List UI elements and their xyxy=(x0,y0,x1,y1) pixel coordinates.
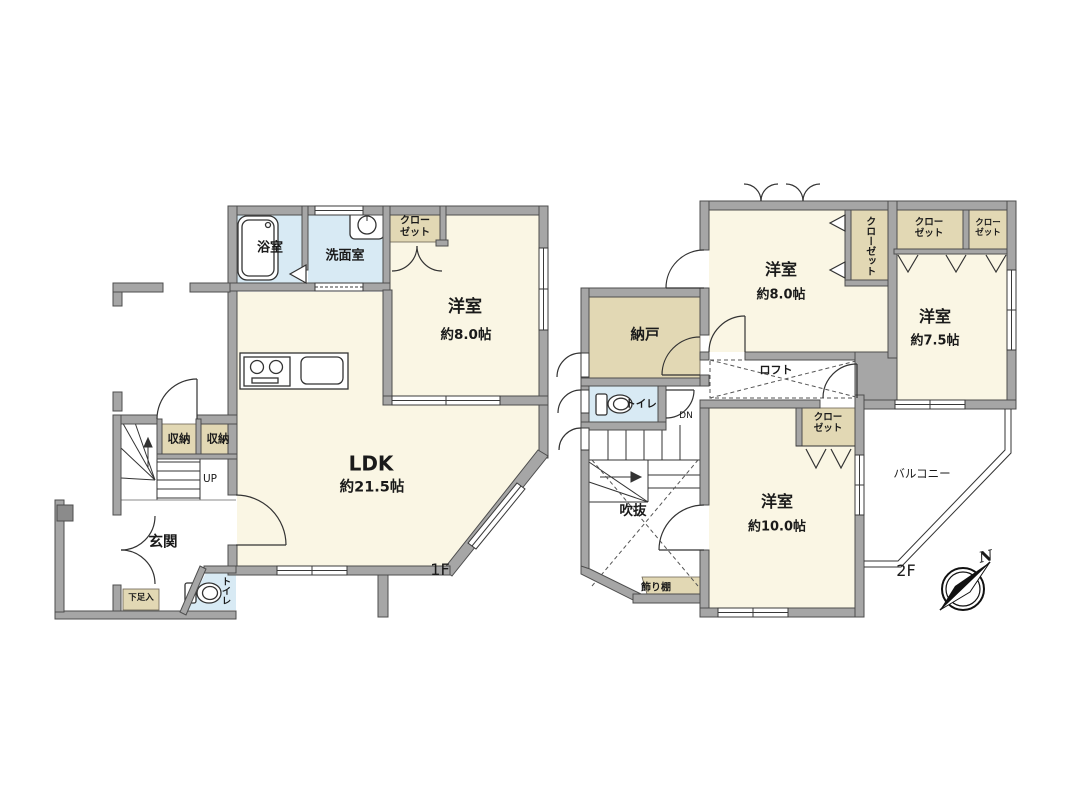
room-label-toilet-1f: トイレ xyxy=(219,577,230,606)
fence-mark xyxy=(113,283,163,292)
fence-mark xyxy=(113,392,122,411)
hall-door-arc xyxy=(157,379,197,419)
atrium-dashed-area xyxy=(592,460,698,586)
room-label-storeroom: 納戸 xyxy=(631,328,660,345)
room-size-western-8: 約8.0帖 xyxy=(756,289,805,304)
room-label-closet-b: クローゼット xyxy=(973,219,1003,239)
room-label-ldk: LDK xyxy=(349,453,394,476)
fence-mark xyxy=(113,292,122,306)
room-label-balcony: バルコニー xyxy=(893,467,950,480)
gate-post xyxy=(57,505,73,521)
room-label-western-8: 洋室 xyxy=(765,261,797,279)
kitchen-sink-icon xyxy=(301,357,343,384)
compass-north-label: N xyxy=(977,547,994,567)
french-window-arc xyxy=(803,184,820,201)
room-label-washroom: 洗面室 xyxy=(325,250,364,265)
floor-plan-drawing xyxy=(0,0,1080,810)
room-label-western-1f: 洋室 xyxy=(448,298,482,318)
floor-plan-page: 浴室 洗面室 クローゼット 洋室 約8.0帖 LDK 約21.5帖 収納 収納 … xyxy=(0,0,1080,810)
fence-mark xyxy=(190,283,230,292)
room10-door-arc xyxy=(659,505,704,550)
floor-label-1f: 1F xyxy=(430,561,449,579)
room-label-closet-10: クローゼット xyxy=(811,413,845,435)
stairs-2f xyxy=(589,425,700,502)
room-label-storage-left: 収納 xyxy=(168,432,191,445)
room-label-shoe-cabinet: 下足入 xyxy=(128,594,154,604)
kitchen-icon xyxy=(240,353,348,389)
room8-door-arc xyxy=(666,250,704,288)
room-label-closet-vertical: クローゼット xyxy=(863,216,875,276)
room-label-closet-a: クローゼット xyxy=(912,218,946,240)
room-label-bath: 浴室 xyxy=(257,242,283,257)
room-label-closet-1f: クローゼット xyxy=(396,216,434,239)
room-label-storage-right: 収納 xyxy=(207,432,230,445)
floor-label-2f: 2F xyxy=(896,562,915,580)
french-window-arc xyxy=(786,184,803,201)
room-size-ldk: 約21.5帖 xyxy=(340,480,405,497)
room-label-entrance: 玄関 xyxy=(149,535,178,552)
room-label-loft: ロフト xyxy=(760,365,793,378)
room-label-atrium: 吹抜 xyxy=(620,504,647,520)
stairs-up-label: UP xyxy=(203,473,217,485)
french-window-arc xyxy=(761,184,778,201)
room-size-western-75: 約7.5帖 xyxy=(910,335,959,350)
french-window-arc xyxy=(744,184,761,201)
room-label-western-75: 洋室 xyxy=(919,308,951,326)
compass-icon xyxy=(940,562,990,610)
awning-window xyxy=(557,353,589,450)
room-label-toilet-2f: トイレ xyxy=(625,398,657,410)
room-size-western-1f: 約8.0帖 xyxy=(441,328,492,344)
stairs-down-label: DN xyxy=(679,411,693,421)
balcony-railing xyxy=(864,409,1011,567)
room-label-display-shelf: 飾り棚 xyxy=(641,582,671,594)
entrance-door-arc xyxy=(121,550,155,584)
room-label-western-10: 洋室 xyxy=(761,493,793,511)
room-size-western-10: 約10.0帖 xyxy=(748,521,806,536)
room-fills-1f xyxy=(123,215,539,610)
